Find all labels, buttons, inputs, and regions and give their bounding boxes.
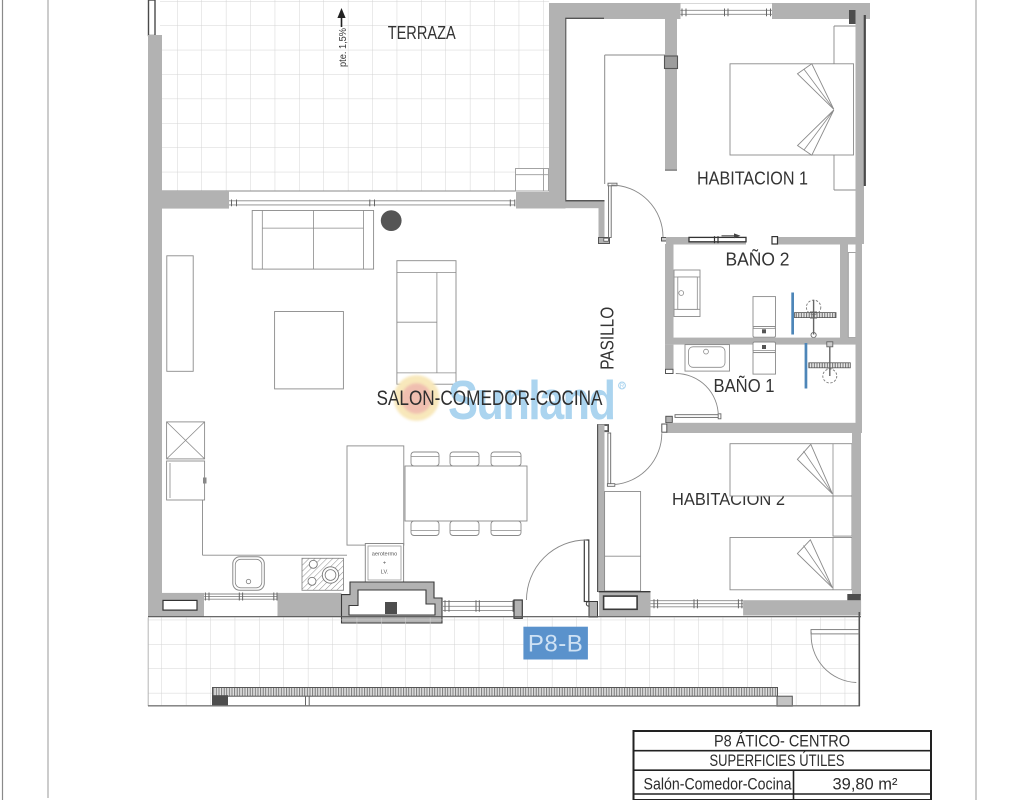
svg-text:SALON-COMEDOR-COCINA: SALON-COMEDOR-COCINA bbox=[377, 386, 604, 410]
svg-text:BAÑO 1: BAÑO 1 bbox=[714, 375, 775, 396]
svg-text:aerotermo: aerotermo bbox=[372, 552, 398, 558]
svg-text:P8-B: P8-B bbox=[528, 631, 583, 658]
svg-text:Salón-Comedor-Cocina: Salón-Comedor-Cocina bbox=[644, 776, 793, 794]
svg-text:HABITACION 1: HABITACION 1 bbox=[697, 168, 808, 189]
svg-text:TERRAZA: TERRAZA bbox=[388, 22, 457, 43]
svg-text:P8 ÁTICO- CENTRO: P8 ÁTICO- CENTRO bbox=[714, 732, 850, 751]
svg-text:+: + bbox=[383, 561, 386, 567]
svg-text:pte. 1,5%: pte. 1,5% bbox=[337, 28, 349, 67]
svg-text:LV.: LV. bbox=[381, 570, 389, 576]
svg-text:BAÑO 2: BAÑO 2 bbox=[726, 249, 790, 270]
svg-text:39,80 m²: 39,80 m² bbox=[833, 776, 898, 794]
svg-text:R: R bbox=[620, 383, 625, 390]
svg-text:SUPERFICIES ÚTILES: SUPERFICIES ÚTILES bbox=[710, 751, 845, 770]
svg-text:PASILLO: PASILLO bbox=[597, 307, 618, 370]
